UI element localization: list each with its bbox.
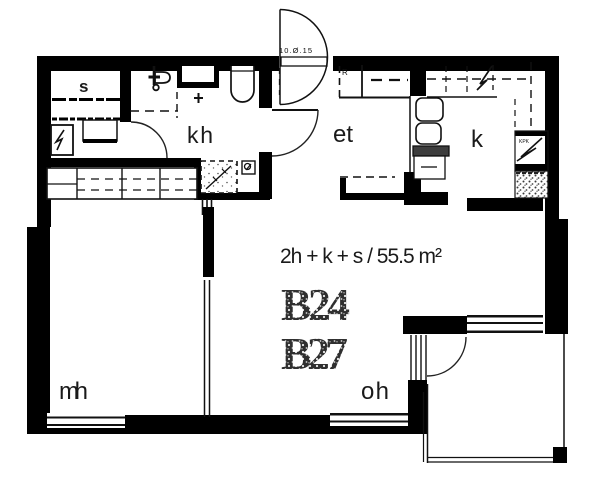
svg-text:KPK: KPK xyxy=(519,139,530,145)
svg-text:2h + k + s / 55.5 m²: 2h + k + s / 55.5 m² xyxy=(280,245,442,268)
svg-text:R: R xyxy=(342,68,348,77)
svg-text:mh: mh xyxy=(59,378,88,405)
svg-text:k: k xyxy=(471,126,484,153)
svg-text:s: s xyxy=(79,77,88,96)
svg-text:oh: oh xyxy=(361,378,389,405)
svg-text:kh: kh xyxy=(187,122,213,148)
svg-text:10.Ø.15: 10.Ø.15 xyxy=(279,46,312,55)
svg-text:et: et xyxy=(333,121,353,148)
